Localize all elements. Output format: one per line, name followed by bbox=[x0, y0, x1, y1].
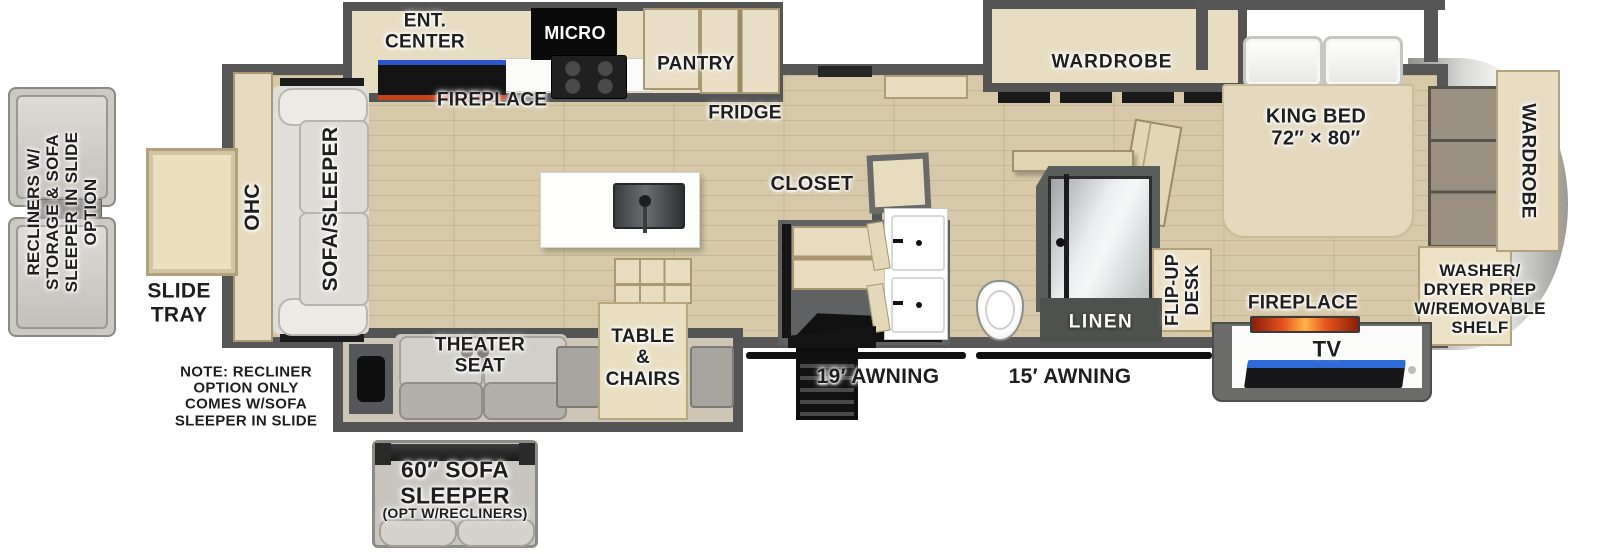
island-faucet-stem bbox=[643, 207, 647, 233]
wardrobe-bedroom-label: WARDROBE bbox=[1052, 51, 1173, 72]
sofa-sleeper-label: SOFA/SLEEPER bbox=[319, 127, 343, 292]
sofa60-cushion-right bbox=[457, 519, 535, 547]
king-bed-label: KING BED 72″ × 80″ bbox=[1266, 106, 1366, 151]
sofa60-arm-left bbox=[375, 443, 391, 465]
bed-slide-wall-top bbox=[1200, 0, 1445, 10]
slide-tray bbox=[146, 148, 238, 276]
closet-pole bbox=[782, 224, 791, 338]
island-faucet bbox=[639, 195, 651, 207]
theater-seat-right bbox=[483, 382, 567, 420]
kitchen-fireplace-label: FIREPLACE bbox=[437, 89, 547, 110]
flip-up-desk-label: FLIP-UP DESK bbox=[1162, 254, 1202, 326]
recliner-note: NOTE: RECLINER OPTION ONLY COMES W/SOFA … bbox=[175, 365, 317, 430]
medicine-cabinet bbox=[867, 152, 932, 213]
ent-center-label: ENT. CENTER bbox=[385, 11, 465, 54]
sink-faucet bbox=[893, 239, 903, 243]
tv-power-dot bbox=[1408, 366, 1416, 374]
dining-chair-right bbox=[690, 346, 734, 408]
vanity-sink-bottom bbox=[891, 277, 945, 333]
micro-label: MICRO bbox=[544, 23, 606, 43]
awning-19-label: 19′ AWNING bbox=[817, 365, 940, 389]
closet-label: CLOSET bbox=[771, 173, 854, 195]
shower-handle bbox=[1056, 238, 1065, 247]
sofa60-arm-right bbox=[519, 443, 535, 465]
dining-chair-left bbox=[556, 346, 600, 408]
front-tall-cabinet bbox=[1428, 86, 1504, 248]
pillow-left bbox=[1243, 36, 1323, 88]
floorplan-canvas: { "floorplan": { "exterior_options": { "… bbox=[0, 0, 1600, 553]
slide-storage bbox=[349, 344, 393, 414]
vanity bbox=[884, 208, 948, 340]
island-sink bbox=[613, 183, 685, 229]
counter-segment bbox=[884, 75, 968, 99]
toilet-seat-ring bbox=[985, 290, 1015, 330]
vanity-sink-top bbox=[891, 215, 945, 271]
theater-seat-label: THEATER SEAT bbox=[435, 335, 525, 378]
table-chairs-label: TABLE & CHAIRS bbox=[606, 326, 681, 390]
shower-door-frame bbox=[1064, 174, 1069, 306]
sink-drain bbox=[916, 302, 922, 308]
wardrobe-hanging-rod bbox=[998, 92, 1233, 103]
awning-rail-15 bbox=[976, 352, 1212, 359]
window bbox=[818, 66, 872, 77]
pantry-label: PANTRY bbox=[657, 53, 735, 74]
bed-slide-wall-left bbox=[1196, 0, 1208, 70]
kitchen-island bbox=[540, 172, 700, 248]
washer-dryer-label: WASHER/ DRYER PREP W/REMOVABLE SHELF bbox=[1414, 261, 1545, 337]
stove-cooktop bbox=[551, 55, 627, 99]
fridge-label: FRIDGE bbox=[708, 102, 782, 123]
linen-label: LINEN bbox=[1069, 311, 1134, 332]
sofa60-label: 60″ SOFA SLEEPER bbox=[400, 457, 509, 509]
storage-opening bbox=[357, 356, 385, 402]
slide-tray-label: SLIDE TRAY bbox=[147, 279, 210, 326]
fridge-cabinet bbox=[700, 8, 780, 94]
tv-label: TV bbox=[1313, 338, 1342, 363]
pantry-cabinet bbox=[643, 8, 700, 90]
front-wardrobe-label: WARDROBE bbox=[1517, 103, 1538, 218]
ohc-label: OHC bbox=[241, 183, 265, 231]
bed-slide-wall-right bbox=[1424, 0, 1438, 62]
dining-hutch bbox=[614, 258, 692, 304]
bedroom-fireplace-label: FIREPLACE bbox=[1248, 292, 1358, 313]
sofa60-sublabel: (OPT W/RECLINERS) bbox=[382, 506, 527, 522]
awning-rail-19 bbox=[746, 352, 966, 359]
awning-15-label: 15′ AWNING bbox=[1009, 365, 1132, 389]
sofa60-cushion-left bbox=[379, 519, 457, 547]
theater-seat-left bbox=[399, 382, 483, 420]
recliner-option-label: RECLINERS W/ STORAGE & SOFA SLEEPER IN S… bbox=[24, 82, 100, 342]
tv-device bbox=[1244, 360, 1406, 388]
sink-drain bbox=[916, 240, 922, 246]
sink-faucet bbox=[893, 301, 903, 305]
shower bbox=[1036, 166, 1160, 312]
pillow-right bbox=[1323, 36, 1403, 88]
bedroom-fireplace-flame bbox=[1250, 316, 1360, 333]
